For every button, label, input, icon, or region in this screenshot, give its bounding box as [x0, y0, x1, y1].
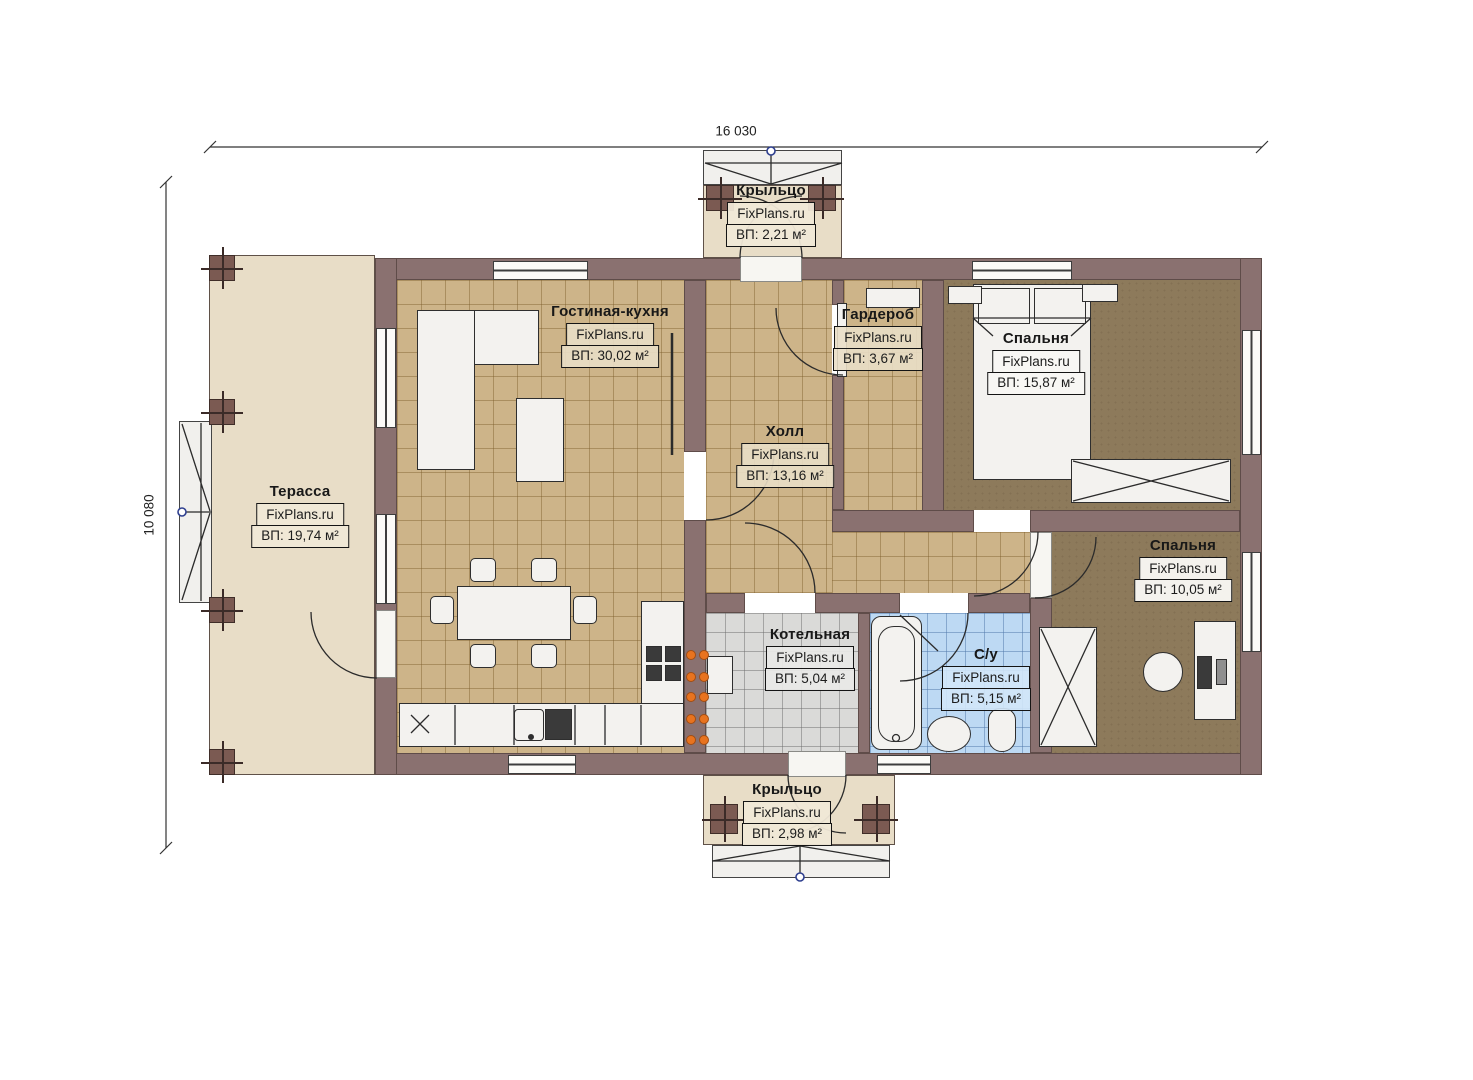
- dining-chair: [470, 644, 496, 668]
- room-area: ВП: 15,87 м²: [987, 372, 1085, 395]
- door-opening-porch-top: [740, 256, 802, 282]
- nightstand: [948, 286, 982, 304]
- room-area: ВП: 2,98 м²: [742, 823, 832, 846]
- room-area: ВП: 3,67 м²: [833, 348, 923, 371]
- dining-chair: [531, 644, 557, 668]
- room-area: ВП: 5,04 м²: [765, 668, 855, 691]
- porch-bottom-column-right: [862, 804, 890, 834]
- desk-chair: [1143, 652, 1183, 692]
- dishwasher: [545, 709, 572, 740]
- room-label-porch-top: Крыльцо FixPlans.ru ВП: 2,21 м²: [726, 182, 816, 247]
- window-living-top: [493, 261, 588, 280]
- room-area: ВП: 2,21 м²: [726, 224, 816, 247]
- room-name: Терасса: [270, 483, 331, 500]
- wall-hall-wardrobe-stub: [832, 280, 844, 305]
- terrace-post-3: [209, 597, 235, 623]
- wardrobe-shelf: [866, 288, 920, 308]
- porch-bottom-steps: [712, 845, 890, 878]
- room-label-terrace: Терасса FixPlans.ru ВП: 19,74 м²: [251, 483, 349, 548]
- room-area: ВП: 19,74 м²: [251, 525, 349, 548]
- watermark: FixPlans.ru: [1139, 557, 1227, 580]
- bedroom2-closet: [1039, 627, 1097, 747]
- wall-boiler-bath-top: [815, 593, 900, 613]
- window-bedroom1-right: [1242, 330, 1261, 455]
- floor-plan-canvas: 16 030 10 080: [0, 0, 1473, 1080]
- room-label-living-kitchen: Гостиная-кухня FixPlans.ru ВП: 30,02 м²: [551, 303, 669, 368]
- dining-table: [457, 586, 571, 640]
- room-name: Гостиная-кухня: [551, 303, 669, 320]
- room-area: ВП: 30,02 м²: [561, 345, 659, 368]
- terrace-side-steps: [179, 421, 212, 603]
- hall-corridor-floor: [832, 532, 1030, 593]
- window-bedroom1-top: [972, 261, 1072, 280]
- bathroom-sink: [927, 716, 971, 752]
- wall-boiler-top-a: [706, 593, 745, 613]
- boiler-unit: [707, 656, 733, 694]
- room-label-hall: Холл FixPlans.ru ВП: 13,16 м²: [736, 423, 834, 488]
- room-name: Холл: [766, 423, 804, 440]
- window-living-left-2: [376, 514, 396, 604]
- bathtub-inner: [878, 626, 915, 742]
- room-label-bedroom1: Спальня FixPlans.ru ВП: 15,87 м²: [987, 330, 1085, 395]
- wall-boiler-bathroom: [858, 613, 870, 753]
- toilet: [988, 708, 1016, 752]
- room-label-wardrobe: Гардероб FixPlans.ru ВП: 3,67 м²: [833, 306, 923, 371]
- pillow: [978, 288, 1030, 324]
- stove-grill: [665, 665, 681, 681]
- wall-hall-wardrobe: [832, 375, 844, 510]
- kitchen-sink: [514, 709, 544, 741]
- wall-wardrobe-bedroom1: [922, 280, 944, 532]
- watermark: FixPlans.ru: [766, 646, 854, 669]
- terrace-post-1: [209, 255, 235, 281]
- watermark: FixPlans.ru: [256, 503, 344, 526]
- stove-grill: [665, 646, 681, 662]
- room-name: Крыльцо: [736, 182, 806, 199]
- coffee-table: [516, 398, 564, 482]
- wall-bath-top-b: [968, 593, 1030, 613]
- dining-chair: [573, 596, 597, 624]
- room-name: Котельная: [770, 626, 850, 643]
- window-bathroom-bottom: [877, 755, 931, 774]
- watermark: FixPlans.ru: [834, 326, 922, 349]
- room-name: С/у: [974, 646, 998, 663]
- dim-tick: [1256, 141, 1268, 153]
- watermark: FixPlans.ru: [741, 443, 829, 466]
- stove-grill: [646, 665, 662, 681]
- wall-living-hall-upper: [684, 280, 706, 452]
- dimension-width-label: 16 030: [715, 124, 756, 139]
- dining-chair: [430, 596, 454, 624]
- room-area: ВП: 10,05 м²: [1134, 579, 1232, 602]
- window-bedroom2-right: [1242, 552, 1261, 652]
- dim-tick: [204, 141, 216, 153]
- sofa-left-section: [417, 310, 475, 470]
- room-name: Спальня: [1003, 330, 1069, 347]
- bedroom1-wardrobe: [1071, 459, 1231, 503]
- terrace-post-2: [209, 399, 235, 425]
- dining-chair: [531, 558, 557, 582]
- wall-corridor-top-left: [832, 510, 974, 532]
- terrace-post-4: [209, 749, 235, 775]
- pillow: [1034, 288, 1086, 324]
- door-opening-porch-bottom: [788, 751, 846, 777]
- watermark: FixPlans.ru: [566, 323, 654, 346]
- room-area: ВП: 13,16 м²: [736, 465, 834, 488]
- wall-living-hall-lower: [684, 520, 706, 753]
- watermark: FixPlans.ru: [727, 202, 815, 225]
- dining-chair: [470, 558, 496, 582]
- dimension-height-label: 10 080: [142, 494, 157, 535]
- door-opening-terrace: [376, 610, 396, 678]
- stove-grill: [646, 646, 662, 662]
- window-living-left-1: [376, 328, 396, 428]
- room-label-porch-bottom: Крыльцо FixPlans.ru ВП: 2,98 м²: [742, 781, 832, 846]
- room-name: Спальня: [1150, 537, 1216, 554]
- porch-bottom-column-left: [710, 804, 738, 834]
- monitor: [1197, 656, 1212, 689]
- watermark: FixPlans.ru: [743, 801, 831, 824]
- wall-corridor-top-right: [1030, 510, 1240, 532]
- room-area: ВП: 5,15 м²: [941, 688, 1031, 711]
- watermark: FixPlans.ru: [942, 666, 1030, 689]
- window-kitchen-bottom: [508, 755, 576, 774]
- room-name: Крыльцо: [752, 781, 822, 798]
- room-label-bedroom2: Спальня FixPlans.ru ВП: 10,05 м²: [1134, 537, 1232, 602]
- room-name: Гардероб: [842, 306, 915, 323]
- door-opening-bedroom2: [1030, 532, 1052, 598]
- room-label-bathroom: С/у FixPlans.ru ВП: 5,15 м²: [941, 646, 1031, 711]
- watermark: FixPlans.ru: [992, 350, 1080, 373]
- dim-tick: [160, 842, 172, 854]
- room-label-boiler: Котельная FixPlans.ru ВП: 5,04 м²: [765, 626, 855, 691]
- pc-tower: [1216, 659, 1227, 685]
- dim-tick: [160, 176, 172, 188]
- nightstand: [1082, 284, 1118, 302]
